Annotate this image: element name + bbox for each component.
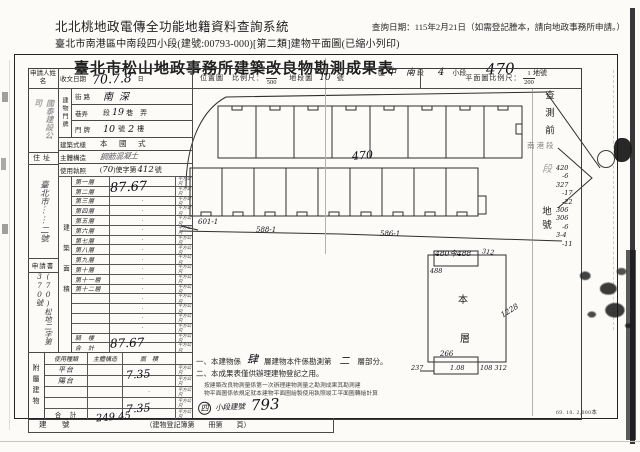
- plan-parcel-601-1: 601-1: [198, 218, 218, 226]
- note-floors-hand: 肆: [247, 351, 258, 367]
- plate-floor-hand: 2: [128, 124, 134, 135]
- sidebar-parcel-label: 地號: [538, 206, 552, 240]
- form-plan-divider: [192, 68, 193, 418]
- floor2-area-hand: 87.67: [110, 179, 148, 196]
- floor-row: 第三層平方公尺: [72, 197, 192, 207]
- lane-row: 巷弄 段 19 巷 弄: [72, 105, 192, 122]
- structure-row: 主體構造 鋼筋混凝土: [58, 150, 192, 164]
- applicant-name-cell: 國泰建設公司: [28, 88, 59, 153]
- door-plate-vlabel: 建物門牌: [58, 88, 72, 137]
- applicant-name-hand: 國泰建設公司: [30, 99, 55, 142]
- applicant-label-cell: 申請人姓名: [28, 68, 59, 89]
- left-margin-tick: [1, 158, 6, 170]
- left-margin-tick: [2, 92, 8, 102]
- building-no-793-hand: 793: [251, 395, 281, 414]
- license-row: 使用執照 ( 70 )使字第 412 號: [58, 163, 192, 176]
- annex-row: 陽台平方公尺: [45, 376, 192, 387]
- floor-row-empty: 平方公尺: [72, 314, 192, 324]
- location-map-scale-label: 位置圖 比例尺：: [200, 73, 264, 83]
- left-margin-tick: [2, 224, 8, 234]
- scanned-survey-document-page: 北北桃地政電傳全功能地籍資料查詢系統 查詢日期：115年2月21日（如需登記謄本…: [0, 0, 640, 452]
- floor-row: 第六層平方公尺: [72, 226, 192, 236]
- detail-dim-top-right: 312: [482, 247, 495, 257]
- application-no-hand: (70)松地二字第370號: [35, 272, 52, 352]
- receive-date-hand: 70.7.8: [92, 69, 132, 86]
- location-map-scale-fraction: 1 500: [266, 70, 277, 86]
- location-map-scale-cell: 位置圖 比例尺： 1 500 地段圖 10 號: [192, 68, 428, 89]
- sidebar-divider: [532, 88, 533, 416]
- note-surveyed-floor-hand: 二: [340, 352, 350, 367]
- floor-row: 第九層平方公尺: [72, 255, 192, 265]
- total-area-hand: 87.67: [110, 335, 145, 350]
- annex-row: 平台平方公尺: [45, 365, 192, 376]
- detail-dim-bottom-left: 237: [411, 364, 423, 372]
- plan-parcel-470: 470: [352, 148, 374, 162]
- detail-dim-bottom-inner: 1.08: [450, 364, 464, 372]
- floor-area-table: 建築面積 第一層平方公尺 第二層平方公尺 第三層平方公尺 第四層平方公尺 第五層…: [58, 176, 192, 353]
- lane-number-hand: 19: [112, 107, 124, 118]
- door-plate-block: 建物門牌 街路 南深 巷弄 段 19 巷 弄 門牌 10 號 2 樓: [58, 88, 192, 138]
- detail-dim-top-left: 488: [430, 267, 442, 275]
- street-hand: 南深: [103, 88, 135, 103]
- sheet-number-hand: 10: [319, 73, 330, 83]
- old-parcel-numbers: 420 -6 327 -17 -22 306 306 -6 3-4 -11: [556, 164, 572, 248]
- balcony-area-hand: 7.35: [126, 367, 151, 382]
- floor-row: 第七層平方公尺: [72, 236, 192, 246]
- structure-hand: 鋼筋混凝土: [99, 150, 138, 162]
- annex-vlabel: 附屬建物: [28, 353, 45, 419]
- scan-bottom-line: [0, 441, 640, 442]
- annex-row-empty: 平方公尺: [45, 398, 192, 409]
- style-row: 建築式樣 本 國 式: [58, 137, 192, 151]
- floor-row: 第十二層平方公尺: [72, 285, 192, 295]
- building-no-row: 建 號 （建物登記簿第 冊第 頁）: [28, 418, 334, 433]
- application-no-cell: (70)松地二字第370號: [28, 272, 59, 352]
- floor-row: 第五層平方公尺: [72, 216, 192, 226]
- street-row: 街路 南深: [72, 88, 192, 105]
- detail-dim-bottom-right: 108 312: [480, 364, 507, 372]
- plan-scale-cell: 平面圖比例尺： 1 200: [420, 68, 581, 89]
- plan-scale-label: 平面圖比例尺：: [465, 73, 521, 83]
- detail-dim-top: 480今488: [435, 248, 471, 259]
- plan-scale-fraction: 1 200: [523, 70, 534, 86]
- floor-row-empty: 平方公尺: [72, 304, 192, 314]
- note-line-1: 一、本建物係 肆 層建物本件係勘測第 二 層部分。: [196, 351, 388, 367]
- floor-area-vlabel: 建築面積: [58, 177, 72, 353]
- hole-punch: [597, 150, 615, 168]
- license-no-hand: 412: [138, 165, 154, 175]
- floor-row-empty: 平方公尺: [72, 294, 192, 304]
- scan-edge-left: [9, 60, 10, 430]
- sheet-suffix: 號: [337, 73, 344, 83]
- annex-header-row: 使用種類 主體構造 面 積: [45, 353, 192, 365]
- receive-date-row: 收文日期 70.7.8 日: [58, 68, 192, 89]
- detail-floor-char1: 本: [458, 291, 468, 306]
- plate-row: 門牌 10 號 2 樓: [72, 121, 192, 137]
- note-line-2: 二、本成果表僅供辦理建物登記之用。: [196, 368, 324, 379]
- detail-floor-char2: 層: [460, 330, 470, 345]
- section-stamp: 南港段: [527, 140, 556, 151]
- print-info: 69. 10. 2,000本: [556, 408, 597, 416]
- plan-parcel-586-1: 586-1: [380, 230, 400, 238]
- plate-no-hand: 10: [103, 124, 115, 135]
- application-label-cell: 申請書: [28, 258, 59, 273]
- scan-edge-heavy: [626, 250, 636, 440]
- annex-row-empty: 平方公尺: [45, 387, 192, 398]
- sidebar-hand-mark: 段: [542, 160, 552, 175]
- plan-parcel-588-1: 588-1: [256, 226, 276, 234]
- annex-table: 附屬建物 使用種類 主體構造 面 積 平台平方公尺 陽台平方公尺 平方公尺 平方…: [28, 352, 192, 419]
- residence-value-cell: 臺北市⋮⋮二號: [28, 164, 59, 259]
- circled-four: 四: [198, 401, 212, 415]
- floor-row: 第八層平方公尺: [72, 245, 192, 255]
- floor-row: 第四層平方公尺: [72, 206, 192, 216]
- floor-row: 第十一層平方公尺: [72, 275, 192, 285]
- detail-dim-bottom-top: 266: [440, 350, 453, 358]
- sheet-label: 地段圖: [289, 73, 313, 83]
- floor-row: 第十層平方公尺: [72, 265, 192, 275]
- floor-row-empty: 平方公尺: [72, 324, 192, 334]
- residence-hand: 臺北市⋮⋮二號: [38, 180, 49, 243]
- note-line-4: 物平面圖係依規定就本建物平面圖繪製使用執照竣工平面圖轉繪計算: [204, 388, 378, 397]
